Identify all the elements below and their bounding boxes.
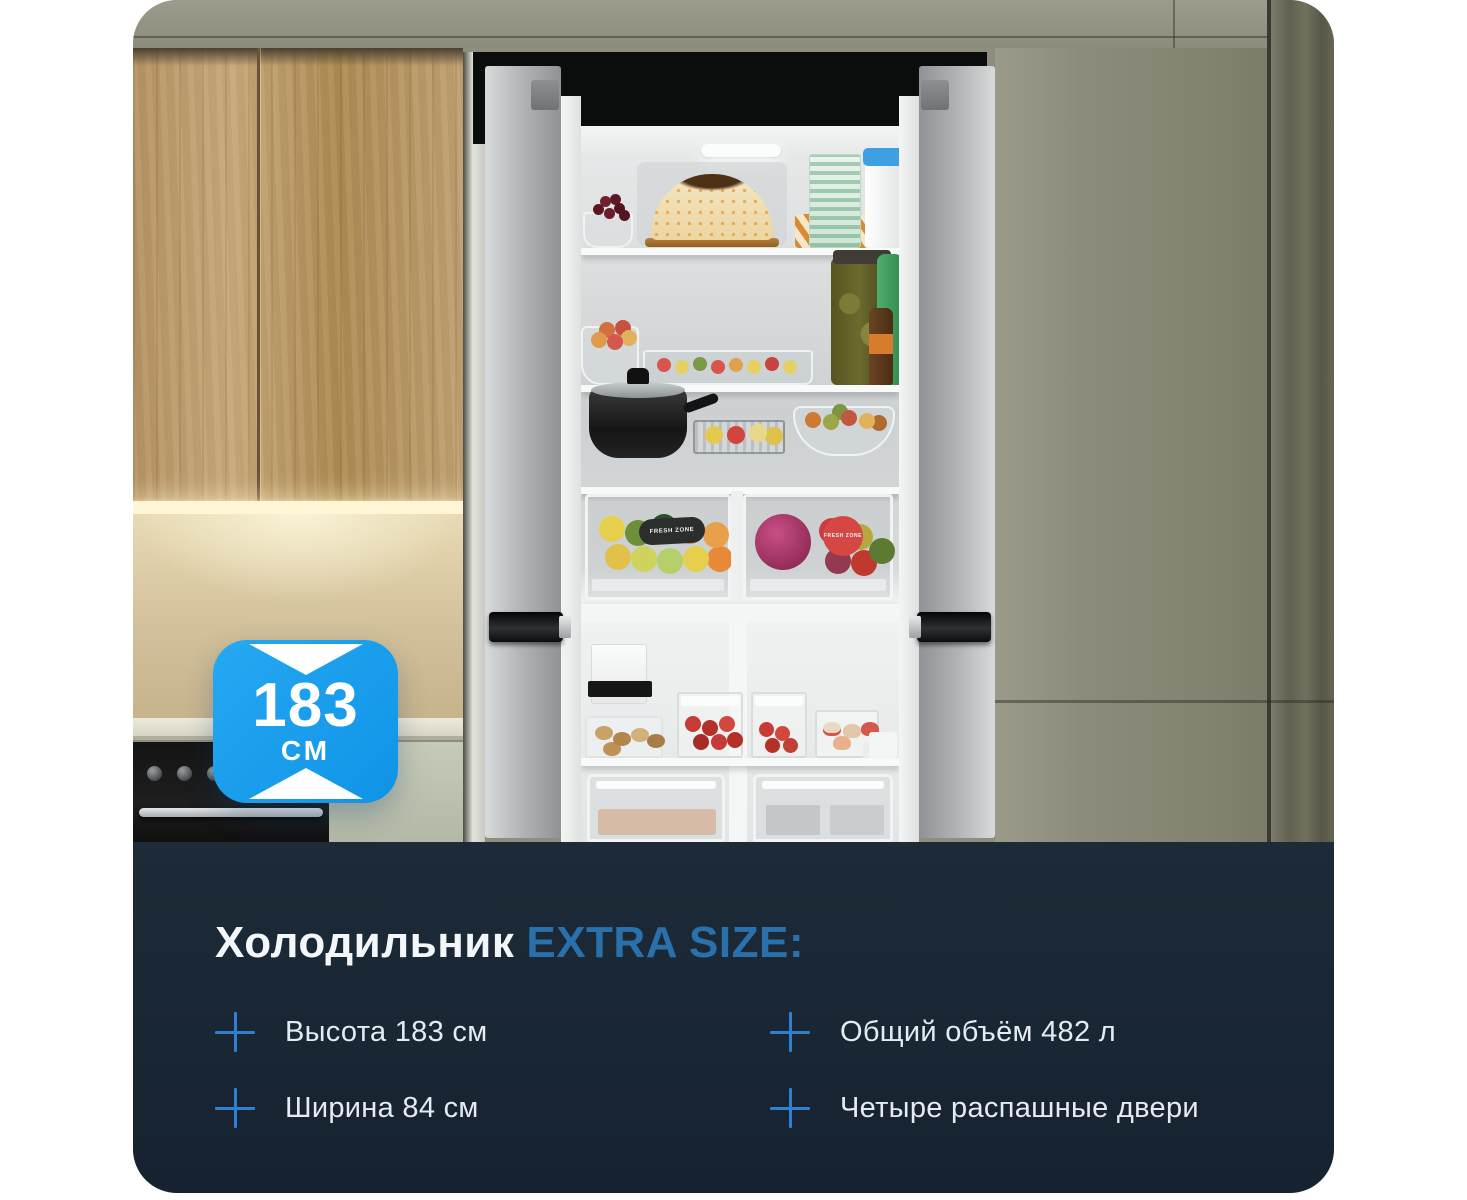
decorated-box (809, 154, 861, 248)
cabinet-shadow (133, 48, 463, 66)
product-photo-card: FRESH ZONE FRESH ZONE (133, 0, 1334, 1193)
feature-label: Высота 183 см (285, 1016, 487, 1049)
container-blue-lid (865, 148, 899, 248)
plus-icon (215, 1088, 255, 1128)
interior-light (701, 144, 781, 157)
feature-label: Четыре распашные двери (840, 1092, 1199, 1125)
cabinet-horizontal-seam (995, 700, 1334, 703)
upper-cabinet-cornice (133, 0, 1334, 48)
specs-panel: ХолодильникEXTRA SIZE: Высота 183 см Общ… (133, 842, 1334, 1193)
height-unit: СМ (281, 737, 330, 765)
oven-knob (147, 766, 162, 781)
ice-maker (591, 644, 647, 704)
freezer-shelf (581, 758, 899, 766)
strawberries (759, 722, 774, 737)
fridge-door-left (485, 66, 561, 838)
peaches (591, 332, 607, 348)
crisper-fruits (599, 516, 625, 542)
compartment-divider (581, 604, 899, 622)
feature-width: Ширина 84 см (215, 1086, 770, 1130)
cabinet-top-seam (1173, 0, 1175, 48)
crisper-drawer-left (585, 494, 731, 600)
cherries-bowl (583, 212, 633, 248)
crisper-divider (731, 491, 743, 603)
cooking-pot (589, 388, 687, 458)
basket-fruit (705, 426, 723, 444)
plus-icon (770, 1088, 810, 1128)
feature-height: Высота 183 см (215, 1010, 770, 1054)
product-card-page: FRESH ZONE FRESH ZONE (0, 0, 1467, 1200)
height-badge: 183 СМ (213, 640, 398, 803)
freezer-drawer-right (753, 774, 893, 842)
ice-cube-tray (869, 732, 897, 758)
plus-icon (770, 1012, 810, 1052)
height-value: 183 (252, 677, 358, 736)
fridge-handle-left (489, 612, 563, 642)
strawberries (685, 716, 701, 732)
wood-wall-cabinet (133, 48, 463, 508)
mushrooms (595, 726, 613, 740)
pot-lid (591, 382, 685, 398)
fresh-zone-text: FRESH ZONE (650, 527, 695, 535)
oven-knob (177, 766, 192, 781)
title-product: Холодильник (215, 918, 514, 967)
freezer-drawer-left (587, 774, 725, 842)
fridge-door-right (919, 66, 995, 838)
panel-title: ХолодильникEXTRA SIZE: (215, 918, 804, 968)
fridge-handle-right (917, 612, 991, 642)
feature-volume: Общий объём 482 л (770, 1010, 1275, 1054)
cabinet-door-seam (257, 48, 260, 508)
vegetables (657, 358, 671, 372)
under-cabinet-light (133, 501, 463, 514)
salad-contents (805, 412, 821, 428)
fresh-zone-label: FRESH ZONE (638, 516, 705, 545)
oven-handle (139, 808, 323, 817)
fridge-interior: FRESH ZONE FRESH ZONE (581, 126, 899, 842)
arrow-up-icon (249, 768, 363, 799)
feature-label: Общий объём 482 л (840, 1016, 1116, 1049)
fresh-zone-sticker: FRESH ZONE (823, 516, 863, 556)
red-cabbage (755, 514, 811, 570)
pot-handle (682, 392, 719, 414)
pot-lid-knob (627, 368, 649, 384)
door-hinge (921, 80, 949, 110)
feature-list: Высота 183 см Общий объём 482 л Ширина 8… (215, 1010, 1275, 1130)
door-liner-left (561, 96, 581, 842)
feature-label: Ширина 84 см (285, 1092, 479, 1125)
door-liner-right (899, 96, 919, 842)
cherries (593, 204, 604, 215)
cabinet-trim-column (1271, 0, 1334, 842)
fridge-side-filler (463, 52, 485, 842)
plus-icon (215, 1012, 255, 1052)
apple-slices (823, 722, 841, 736)
fresh-zone-text: FRESH ZONE (824, 533, 862, 539)
door-hinge (531, 80, 559, 110)
sauce-bottle (869, 308, 893, 385)
tall-cabinet-door (995, 48, 1267, 842)
feature-doors: Четыре распашные двери (770, 1086, 1275, 1130)
title-highlight: EXTRA SIZE: (526, 918, 804, 967)
